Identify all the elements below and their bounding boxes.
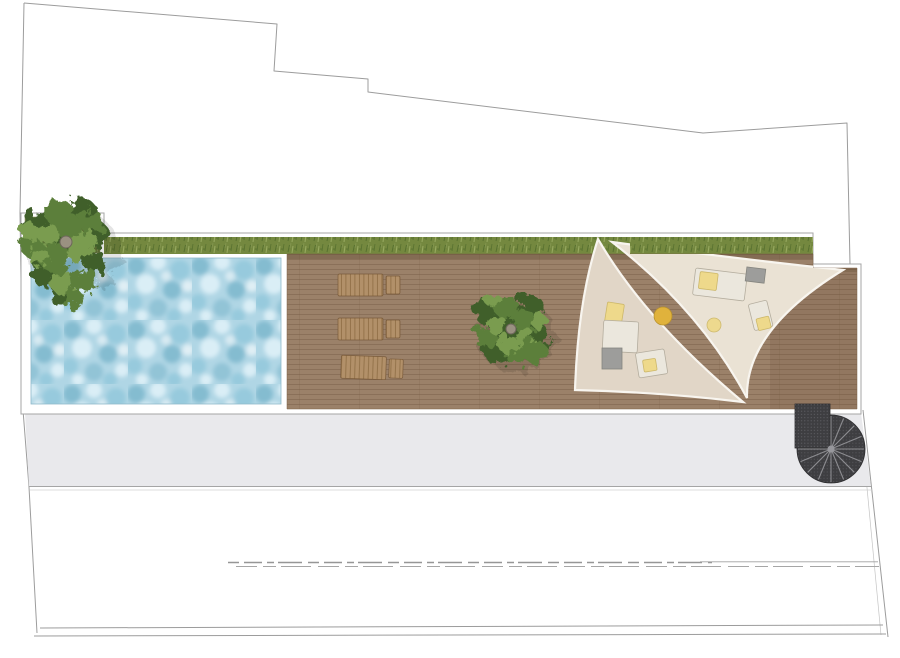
walkway-band	[25, 413, 872, 490]
round-ottoman-pale	[707, 318, 721, 332]
blurred-text-dashes	[228, 562, 879, 567]
boundary-bottom-line-2	[34, 634, 886, 636]
sofa-top	[692, 268, 747, 301]
boundary-top-outline	[24, 3, 850, 264]
stair-hub	[828, 446, 835, 453]
walkway-surface	[25, 413, 871, 487]
boundary-right-outline	[863, 410, 888, 637]
boundary-bottom-line-1	[40, 625, 883, 628]
seat-left-lower	[635, 349, 668, 378]
stair-landing-texture	[795, 404, 830, 448]
tree-trunk	[506, 324, 516, 334]
sun-loungers	[338, 274, 403, 380]
site-plan-drawing	[0, 0, 900, 658]
tree-trunk	[60, 236, 72, 248]
sun-lounger	[338, 274, 400, 296]
side-table-left	[602, 348, 622, 369]
sun-lounger	[341, 355, 404, 380]
lawn-strip	[104, 237, 813, 254]
side-table-top	[745, 267, 766, 283]
round-ottoman-yellow	[654, 307, 672, 325]
sun-lounger	[338, 318, 400, 340]
site-plan-sheet	[0, 0, 900, 658]
